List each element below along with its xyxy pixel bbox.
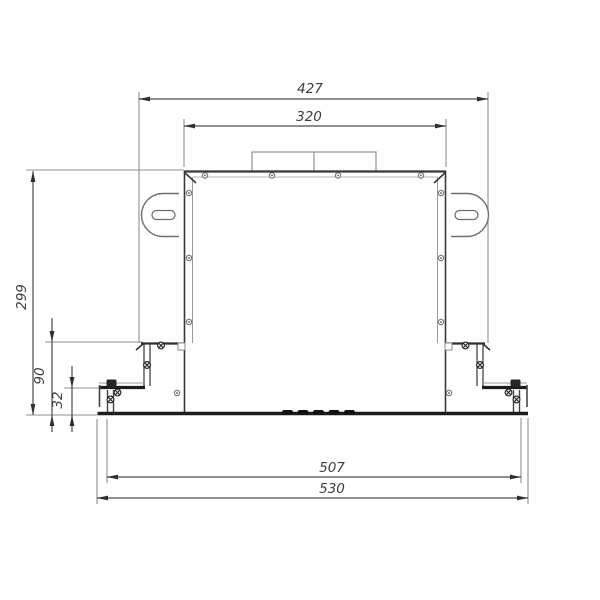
right-bracket-slot bbox=[455, 211, 478, 220]
arrow-icon bbox=[184, 124, 195, 129]
screw-icon bbox=[269, 173, 274, 178]
left-panel-corner-chamfer bbox=[136, 344, 143, 350]
arrow-icon bbox=[70, 415, 75, 426]
arrow-icon bbox=[97, 496, 108, 501]
screw-icon bbox=[202, 173, 207, 178]
screw-icon bbox=[446, 390, 451, 395]
main-body bbox=[178, 171, 452, 413]
arrow-icon bbox=[31, 171, 36, 182]
screw-icon bbox=[418, 173, 423, 178]
arrow-icon bbox=[70, 377, 75, 388]
arrow-icon bbox=[31, 404, 36, 415]
bolt-icon bbox=[477, 362, 484, 369]
arrow-icon bbox=[517, 496, 528, 501]
left-bracket-slot bbox=[152, 211, 175, 220]
dim-label-base-width: 530 bbox=[319, 481, 345, 497]
right-foot-assembly bbox=[477, 344, 528, 413]
screw-icon bbox=[186, 190, 191, 195]
screw-icon bbox=[438, 190, 443, 195]
bolt-icon bbox=[114, 389, 121, 396]
screw-icon bbox=[438, 255, 443, 260]
arrow-icon bbox=[139, 97, 150, 102]
right-bolt-head bbox=[511, 380, 521, 387]
arrow-icon bbox=[510, 475, 521, 480]
bolt-icon bbox=[158, 342, 165, 349]
right-bracket bbox=[451, 194, 489, 237]
right-panel-corner-chamfer bbox=[483, 344, 490, 350]
left-bracket bbox=[142, 194, 180, 237]
left-foot-assembly bbox=[99, 344, 150, 413]
arrow-icon bbox=[477, 97, 488, 102]
bolt-icon bbox=[107, 396, 114, 403]
screw-icon bbox=[186, 319, 191, 324]
drawing-canvas: 427 320 299 90 32 507 530 bbox=[0, 0, 600, 600]
left-flange-tab bbox=[178, 343, 185, 350]
bolt-icon bbox=[144, 362, 151, 369]
dim-label-body-height: 299 bbox=[14, 284, 30, 310]
arrow-icon bbox=[50, 331, 55, 342]
screw-icon bbox=[438, 319, 443, 324]
arrow-icon bbox=[50, 415, 55, 426]
left-bolt-head bbox=[107, 380, 117, 387]
arrow-icon bbox=[435, 124, 446, 129]
bolt-icon bbox=[513, 396, 520, 403]
bolt-icon bbox=[505, 389, 512, 396]
technical-drawing: 427 320 299 90 32 507 530 bbox=[0, 0, 600, 600]
dim-label-body-width: 320 bbox=[296, 109, 322, 125]
dim-label-feet-span: 507 bbox=[319, 460, 345, 476]
screw-icon bbox=[335, 173, 340, 178]
screw-icon bbox=[174, 390, 179, 395]
screw-icon bbox=[186, 255, 191, 260]
bolt-icon bbox=[462, 342, 469, 349]
arrow-icon bbox=[107, 475, 118, 480]
top-cap bbox=[252, 152, 376, 171]
dim-label-bracket-height: 90 bbox=[32, 367, 48, 384]
dim-label-foot-height: 32 bbox=[50, 391, 66, 408]
dim-label-upper-width: 427 bbox=[297, 81, 323, 97]
right-flange-tab bbox=[445, 343, 452, 350]
